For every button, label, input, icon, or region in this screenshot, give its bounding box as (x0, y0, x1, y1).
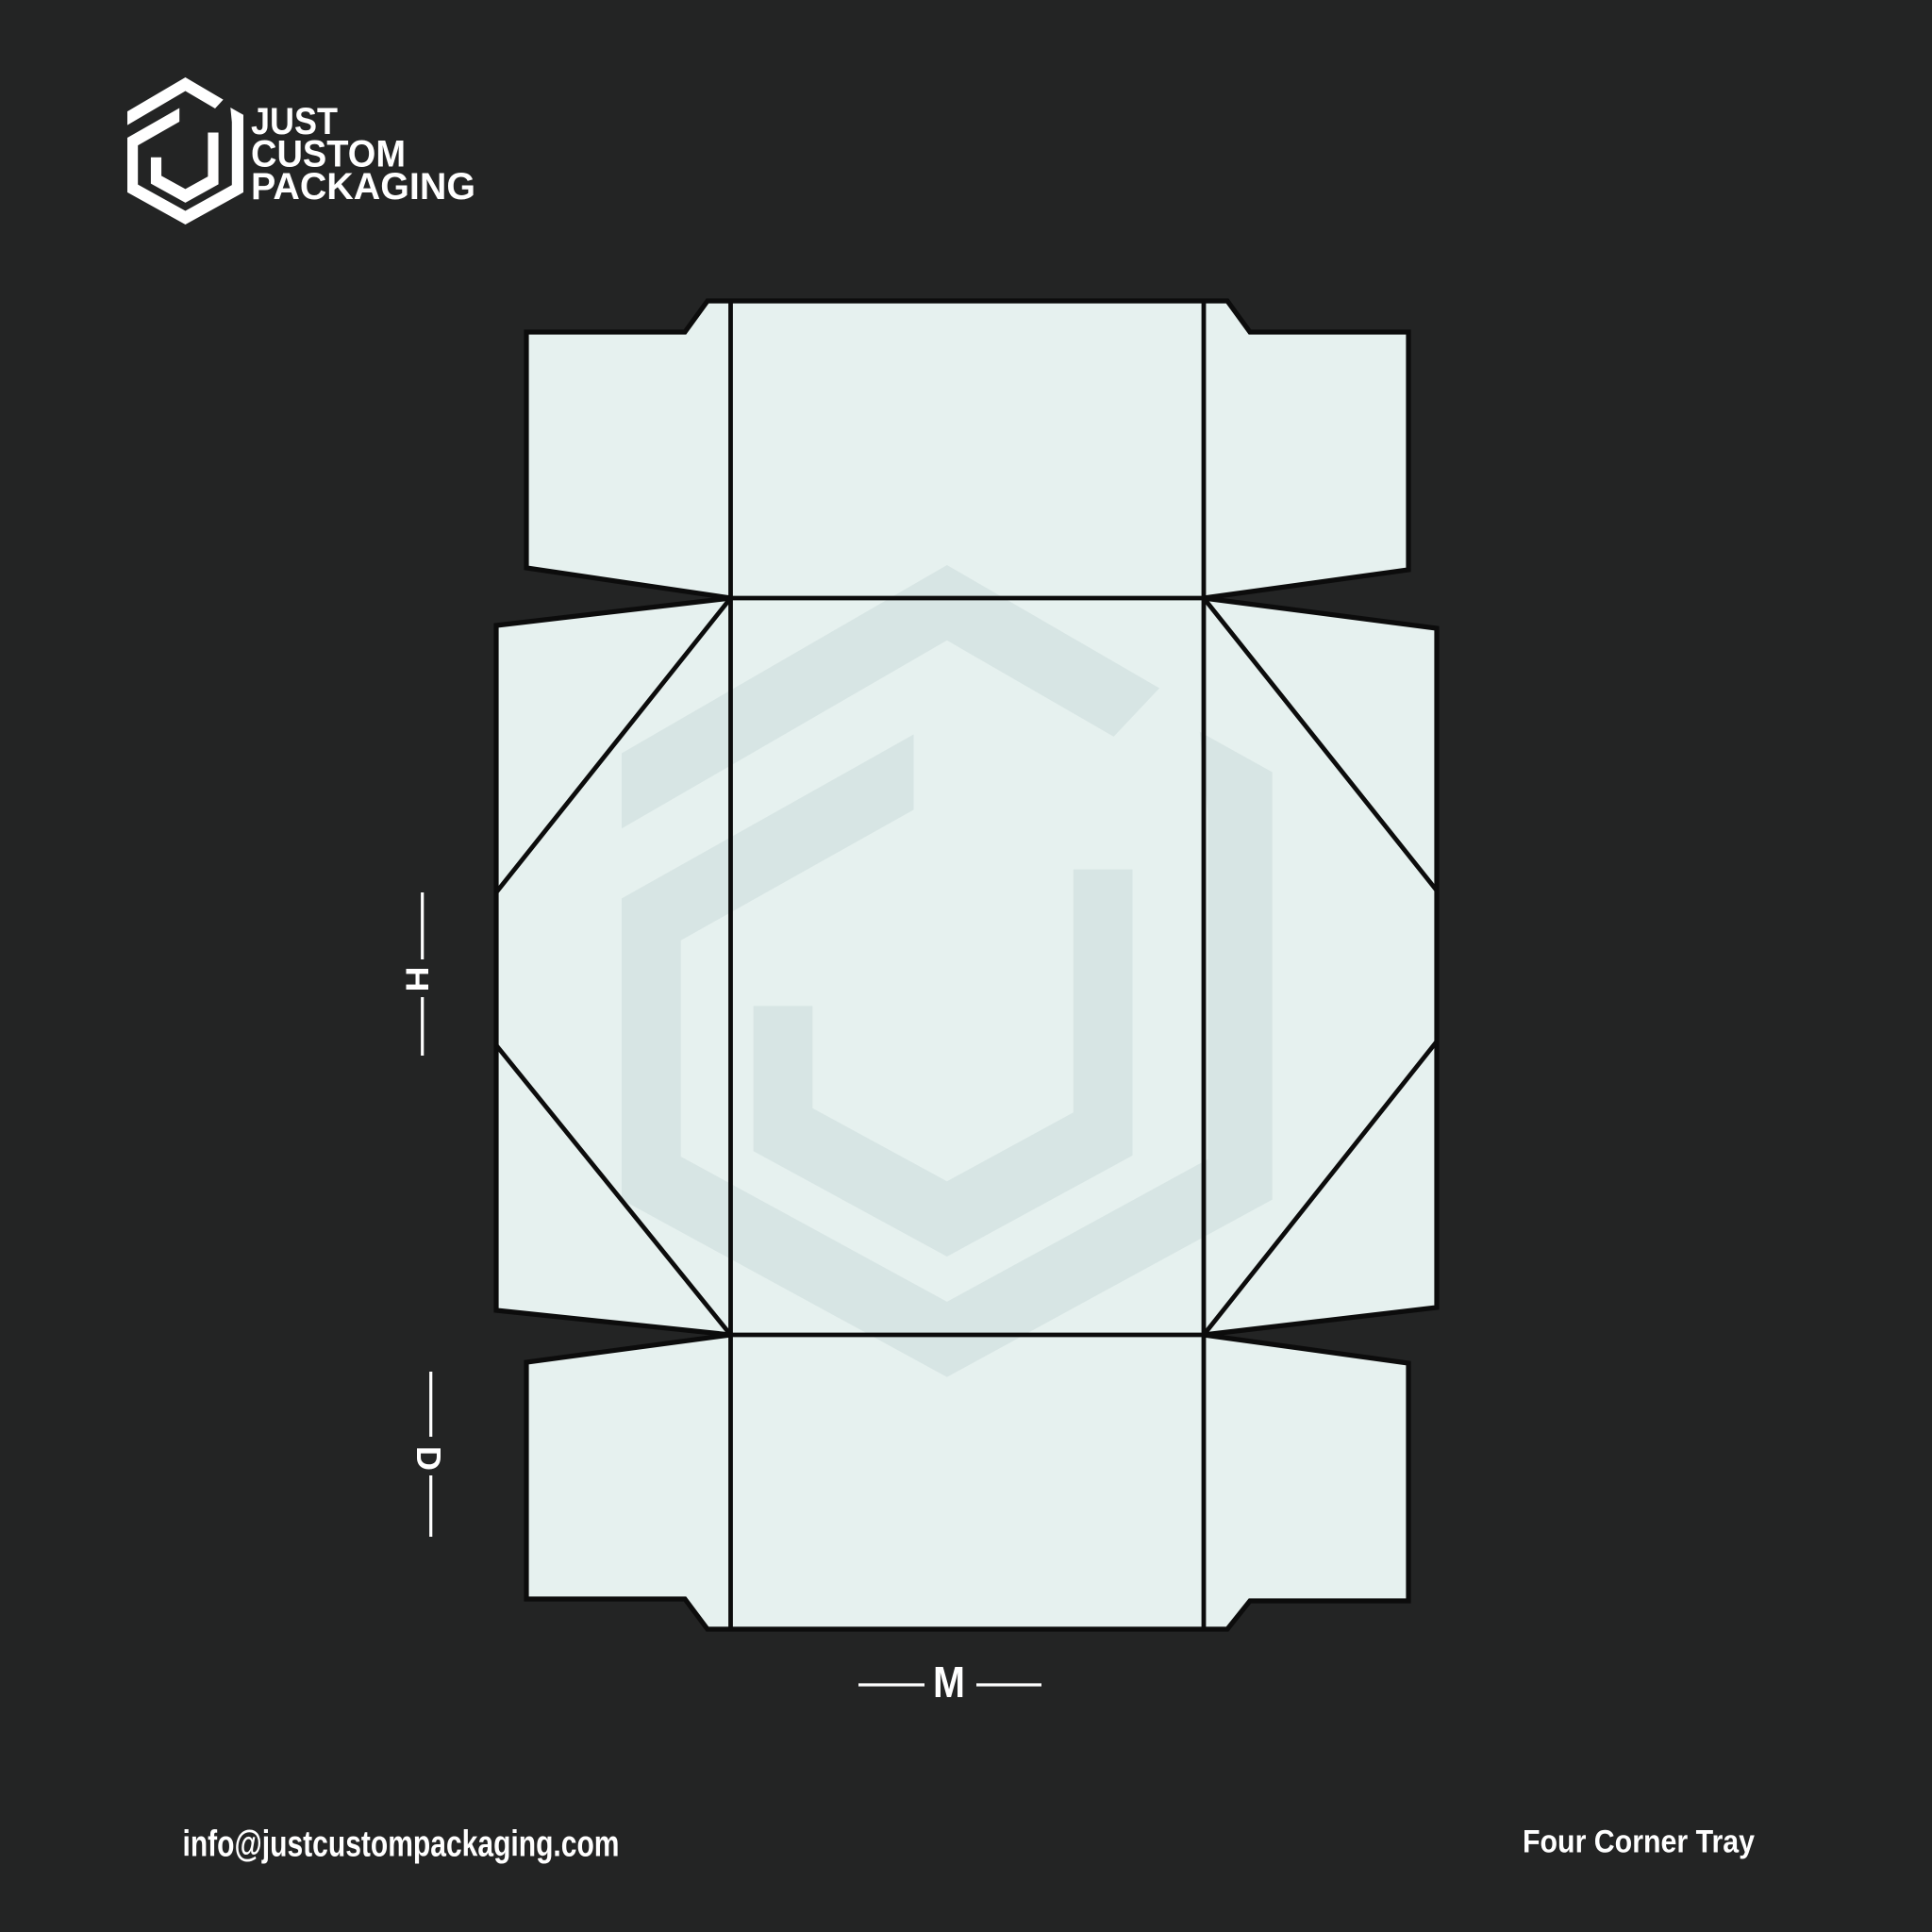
svg-text:H: H (399, 967, 435, 992)
svg-text:PACKAGING: PACKAGING (251, 166, 475, 208)
svg-text:info@justcustompackaging.com: info@justcustompackaging.com (183, 1824, 620, 1865)
svg-text:Four Corner Tray: Four Corner Tray (1523, 1824, 1755, 1860)
svg-text:D: D (409, 1446, 448, 1471)
svg-text:M: M (933, 1657, 965, 1707)
